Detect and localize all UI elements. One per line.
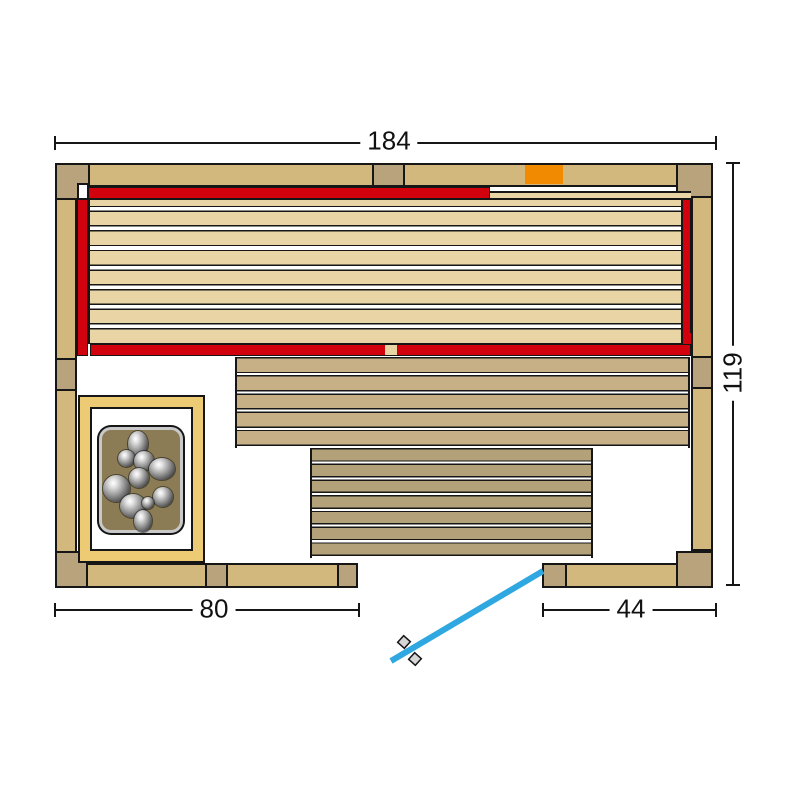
dim-tick xyxy=(358,603,360,617)
dim-label-door-segment: 44 xyxy=(610,594,653,625)
dim-label-width: 184 xyxy=(360,126,417,157)
door-handle-inner xyxy=(409,653,422,666)
door-swing-line xyxy=(391,571,543,661)
dim-tick xyxy=(54,603,56,617)
dim-tick xyxy=(715,603,717,617)
dim-label-left-segment: 80 xyxy=(193,594,236,625)
dim-label-depth: 119 xyxy=(718,345,749,400)
door-handle-outer xyxy=(398,636,411,649)
dim-tick xyxy=(54,136,56,150)
dim-tick xyxy=(715,136,717,150)
dim-tick xyxy=(726,584,740,586)
dim-tick xyxy=(726,162,740,164)
door-layer xyxy=(0,0,800,800)
dim-tick xyxy=(542,603,544,617)
sauna-floor-plan: 184 119 80 44 xyxy=(0,0,800,800)
